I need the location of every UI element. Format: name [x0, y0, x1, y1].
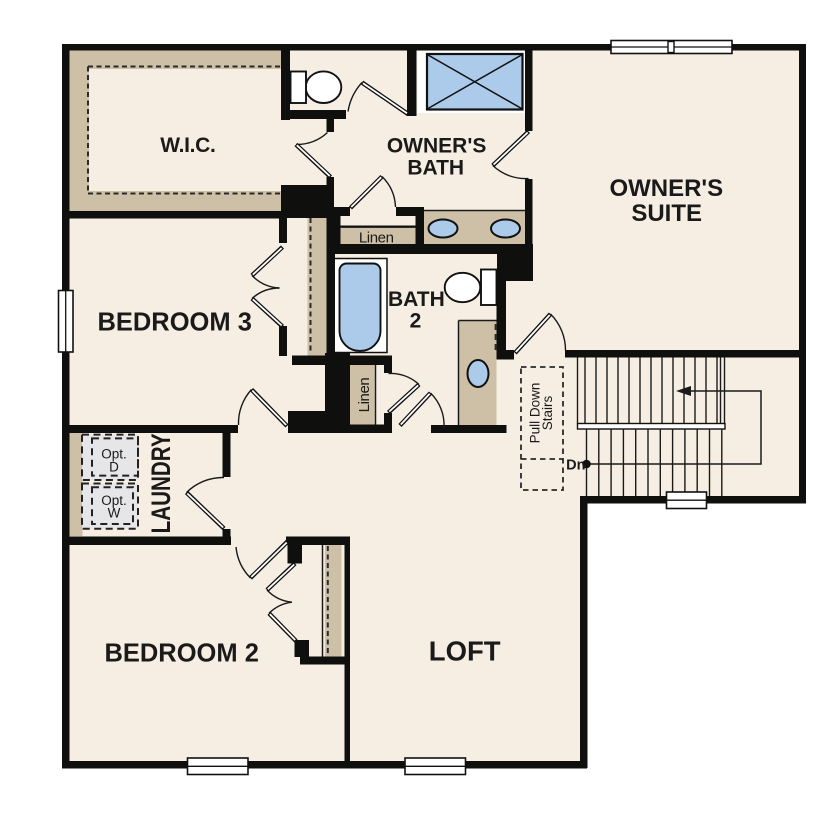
- svg-text:BEDROOM 2: BEDROOM 2: [104, 640, 258, 668]
- svg-text:W.I.C.: W.I.C.: [160, 134, 215, 157]
- svg-text:W: W: [108, 506, 121, 521]
- svg-text:OWNER'S: OWNER'S: [387, 135, 487, 158]
- svg-text:D: D: [109, 460, 119, 475]
- svg-text:Linen: Linen: [356, 378, 373, 413]
- svg-text:BATH: BATH: [388, 288, 445, 311]
- svg-text:Stairs: Stairs: [540, 395, 555, 430]
- svg-text:LAUNDRY: LAUNDRY: [146, 433, 176, 533]
- svg-text:Dn: Dn: [566, 458, 585, 474]
- svg-text:2: 2: [410, 310, 422, 333]
- svg-text:BEDROOM 3: BEDROOM 3: [97, 309, 251, 337]
- svg-text:OWNER'S: OWNER'S: [609, 175, 723, 202]
- svg-text:SUITE: SUITE: [631, 200, 702, 227]
- svg-text:Linen: Linen: [359, 229, 394, 246]
- svg-text:LOFT: LOFT: [429, 636, 501, 667]
- svg-text:BATH: BATH: [407, 157, 464, 180]
